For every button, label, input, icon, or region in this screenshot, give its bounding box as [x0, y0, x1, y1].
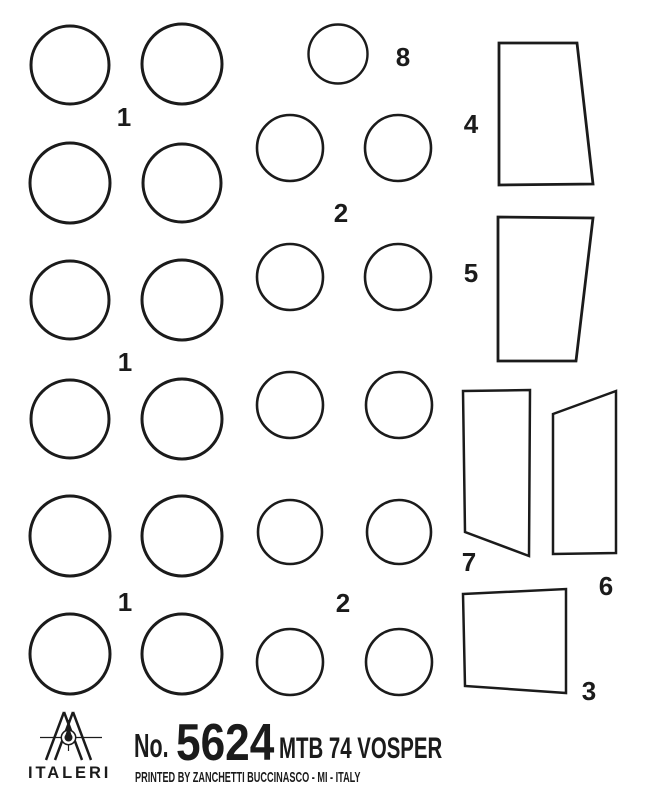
part-label-2: 2: [334, 200, 348, 226]
part-label-1: 1: [118, 349, 132, 375]
kit-number: 5624: [176, 717, 274, 769]
medium-circle: [367, 500, 431, 564]
printed-by-line: PRINTED BY ZANCHETTI BUCCINASCO - MI - I…: [135, 770, 361, 785]
large-circle: [30, 496, 110, 576]
large-circle: [142, 379, 222, 459]
large-circle: [142, 496, 222, 576]
mask-shape-7: [463, 390, 530, 556]
large-circle: [31, 26, 109, 104]
mask-shapes-canvas: [0, 0, 646, 800]
part-label-1: 1: [117, 104, 131, 130]
medium-circle: [257, 372, 323, 438]
large-circle: [143, 144, 221, 222]
medium-circle: [257, 629, 323, 695]
medium-circle: [258, 500, 322, 564]
kit-title: MTB 74 VOSPER: [279, 734, 442, 764]
large-circle: [31, 261, 109, 339]
mask-shape-5: [498, 217, 593, 361]
italeri-a-icon: [40, 707, 102, 765]
part-label-1: 1: [118, 589, 132, 615]
large-circle: [30, 143, 110, 223]
part-label-7: 7: [462, 549, 476, 575]
part-label-5: 5: [464, 260, 478, 286]
medium-circle: [365, 115, 431, 181]
large-circle: [142, 614, 222, 694]
part-label-4: 4: [464, 111, 478, 137]
medium-circle: [257, 244, 323, 310]
brand-wordmark: ITALERI: [28, 764, 111, 781]
part-label-8: 8: [396, 44, 410, 70]
part-label-6: 6: [599, 573, 613, 599]
medium-circle: [366, 372, 432, 438]
part-label-3: 3: [582, 678, 596, 704]
kit-number-prefix: No.: [134, 729, 169, 762]
small-circle: [309, 25, 368, 84]
mask-shape-6: [553, 391, 616, 554]
large-circle: [30, 614, 110, 694]
medium-circle: [257, 115, 323, 181]
trapezoid-masks-group: [463, 43, 616, 693]
mask-shape-3: [463, 589, 566, 693]
part-label-2: 2: [336, 590, 350, 616]
large-circle: [142, 260, 222, 340]
mask-shape-4: [499, 43, 593, 185]
large-circle: [31, 380, 109, 458]
medium-circle: [365, 244, 431, 310]
italeri-logo: [40, 707, 102, 765]
mask-sheet-page: 1 8 2 1 1 2 4 5 7 6 3 ITALE: [0, 0, 646, 800]
large-circle: [142, 24, 222, 104]
medium-circle: [366, 629, 432, 695]
